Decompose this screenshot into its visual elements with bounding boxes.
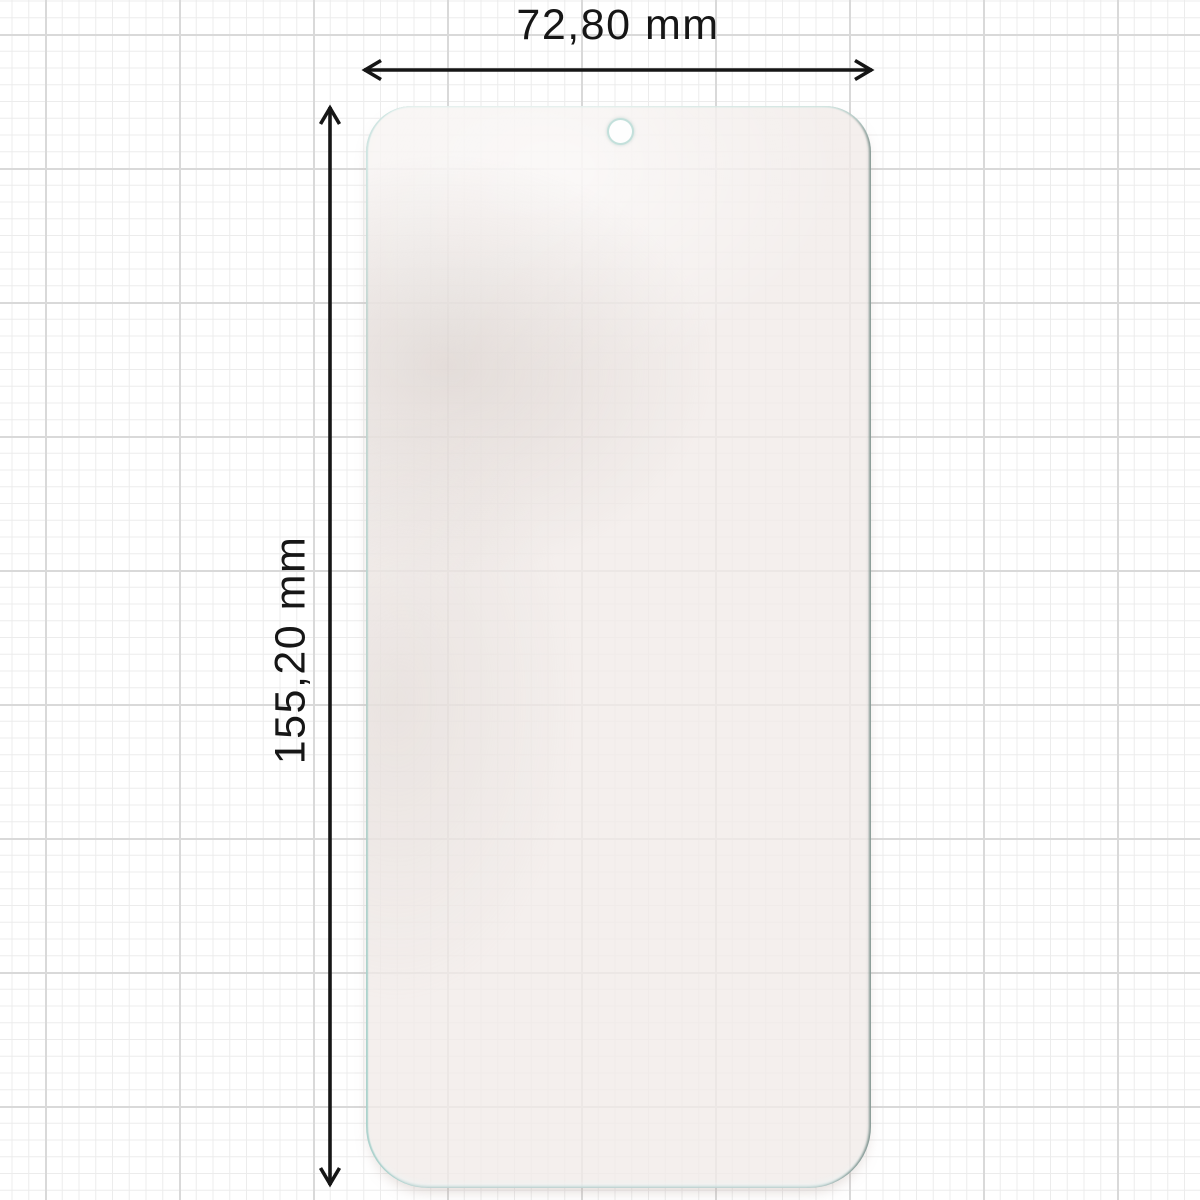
diagram-canvas: 72,80 mm 155,20 mm	[0, 0, 1200, 1200]
camera-hole	[607, 118, 634, 145]
height-dimension-label: 155,20 mm	[267, 536, 314, 765]
screen-protector-glass	[366, 106, 871, 1188]
glass-reflection	[366, 106, 871, 1188]
width-dimension-label: 72,80 mm	[516, 2, 719, 49]
width-dimension-arrow	[358, 57, 878, 83]
height-dimension-arrow	[317, 100, 343, 1192]
